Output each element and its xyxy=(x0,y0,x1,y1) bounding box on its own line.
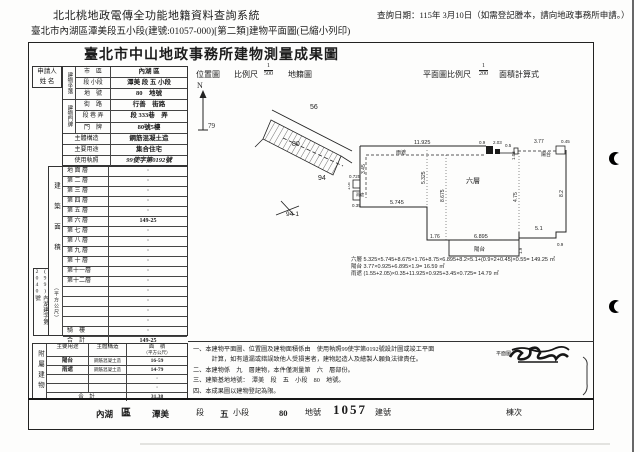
annex-table: 附屬建物 主要用途 主體構造 面 積（平方公尺） 陽台鋼筋混凝土造16-59 雨… xyxy=(32,343,188,399)
footer-building-label: 建號 xyxy=(375,407,391,418)
svg-text:4.75: 4.75 xyxy=(513,192,519,202)
note-line: 一、本建物平面圖、位置圖及建物面積係由 使用執照99使字第0192號設計圖或竣工… xyxy=(193,345,528,355)
svg-text:0.35: 0.35 xyxy=(352,203,361,208)
section-label-address: 建物門牌 xyxy=(62,99,75,133)
map-title: 位置圖 xyxy=(196,69,220,80)
binder-hole-mark xyxy=(609,300,622,313)
svg-text:2.03: 2.03 xyxy=(493,140,502,145)
case-number: (99)內湖建字第2040號 xyxy=(33,269,49,335)
svg-text:0.9: 0.9 xyxy=(557,242,564,247)
annex-row: · xyxy=(47,375,187,384)
floor-row: 第 七 層· xyxy=(63,227,187,237)
document-subtitle: 臺北市內湖區潭美段五小段(建號:01057-000)[第二類]建物平面圖(已縮小… xyxy=(31,23,350,37)
formula-line: 雨遮 (1.55+2.05)×0.35+11.925×0.925+3.45×0.… xyxy=(351,271,581,278)
floor-area-table: 建築面積 （平方公尺） 地 面 層· 第 二 層· 第 三 層· 第 四 層· … xyxy=(48,166,188,336)
floor-row: · xyxy=(63,287,187,297)
annex-side-label: 附屬建物 xyxy=(33,344,47,398)
footer-divider-line xyxy=(28,398,594,400)
footer-subsection-label: 小段 xyxy=(233,407,249,418)
svg-text:5.745: 5.745 xyxy=(390,200,404,206)
note-line: 二、本建物係 九 層建物，本件僅測量第 六 層部份。 xyxy=(193,366,528,376)
table-row: 地 號80 地號 xyxy=(63,89,187,100)
plan-scale-fraction: 1200 xyxy=(479,63,488,77)
plan-calc-label: 面積計算式 xyxy=(499,69,539,80)
svg-text:3.77: 3.77 xyxy=(534,139,544,145)
footer-lot-value: 80 xyxy=(279,408,288,418)
footer-unit-label: 棟次 xyxy=(506,407,522,418)
surveyor-stamp-icon xyxy=(508,343,572,365)
notes-block: 一、本建物平面圖、位置圖及建物面積係由 使用執照99使字第0192號設計圖或竣工… xyxy=(193,345,528,397)
svg-text:陽台: 陽台 xyxy=(474,245,486,253)
bracket-mark-icon xyxy=(582,356,591,396)
parcel-79-label: 79 xyxy=(208,122,215,130)
floor-row: · xyxy=(63,317,187,327)
applicant-box: 申請人 姓 名 xyxy=(32,66,62,88)
svg-text:0.5: 0.5 xyxy=(505,143,512,148)
annex-row: 雨遮鋼筋混凝土造14-79 xyxy=(47,366,187,375)
land-record-page: 北北桃地政電傳全功能地籍資料查詢系統 查詢日期：115年 3月10日（如需登記謄… xyxy=(0,0,640,452)
location-map: 56 80 94 94-1 xyxy=(250,85,355,230)
svg-text:6.895: 6.895 xyxy=(474,234,488,240)
svg-text:5.1: 5.1 xyxy=(535,226,543,232)
svg-text:0.9: 0.9 xyxy=(479,140,486,145)
parcel-56-label: 56 xyxy=(310,104,318,111)
svg-text:8.2: 8.2 xyxy=(559,190,565,197)
query-date: 查詢日期：115年 3月10日（如需登記謄本，請向地政事務所申請。） xyxy=(377,9,630,21)
svg-text:1.9: 1.9 xyxy=(518,247,523,254)
table-row: 段 巷 弄段 333巷 弄 xyxy=(63,111,187,122)
svg-text:陽台: 陽台 xyxy=(541,151,551,158)
floor-row: 第 九 層· xyxy=(63,247,187,257)
footer-section-label: 段 xyxy=(196,407,204,418)
footer-section-value: 潭美 xyxy=(152,408,169,420)
floor-row: 第十一層· xyxy=(63,267,187,277)
floor-row: 第 四 層· xyxy=(63,197,187,207)
svg-text:8.675: 8.675 xyxy=(440,189,446,202)
map-name: 地籍圖 xyxy=(288,69,312,80)
scan-artifact-line xyxy=(140,443,610,445)
section-label-location: 建物坐落 xyxy=(62,66,75,99)
footer-district-value: 內湖 xyxy=(96,408,113,420)
applicant-label-1: 申請人 xyxy=(33,67,61,77)
note-line: 四、本成果圖以建物登記為限。 xyxy=(193,387,528,397)
svg-text:5.325: 5.325 xyxy=(421,171,427,184)
floor-row: 地 面 層· xyxy=(63,167,187,177)
table-row: 主體構造鋼筋混凝土造 xyxy=(63,134,187,145)
annex-grid: 主要用途 主體構造 面 積（平方公尺） 陽台鋼筋混凝土造16-59 雨遮鋼筋混凝… xyxy=(47,344,187,398)
notes-top-line xyxy=(188,341,594,342)
footer-building-number: 1057 xyxy=(333,402,367,418)
footer-district-label: 區 xyxy=(121,404,131,419)
annex-header: 主要用途 主體構造 面 積（平方公尺） xyxy=(47,344,187,357)
svg-text:1.05: 1.05 xyxy=(348,181,351,190)
system-title: 北北桃地政電傳全功能地籍資料查詢系統 xyxy=(53,7,260,23)
svg-text:1.05: 1.05 xyxy=(511,151,516,160)
svg-text:雨遮: 雨遮 xyxy=(396,149,406,156)
footer-subsection-value: 五 xyxy=(220,408,229,420)
area-formulas: 六層 5.325×5.745+8.675×1.76+8.75×6.895+8.2… xyxy=(351,257,581,279)
svg-text:雨遮: 雨遮 xyxy=(356,191,364,197)
table-row: 門 牌80號5樓 xyxy=(63,123,187,134)
footer-lot-label: 地號 xyxy=(305,407,321,418)
note-line: 三、建築基地地號： 潭美 段 五 小段 80 地號。 xyxy=(193,376,528,386)
parcel-80-label: 80 xyxy=(292,141,300,148)
svg-text:11.925: 11.925 xyxy=(414,140,430,146)
parcel-94-1-label: 94-1 xyxy=(286,211,299,218)
floor-row: · xyxy=(63,297,187,307)
note-line: 計算，如有遺漏或錯誤致他人受損害者，建物起造人及繪製人願負法律責任。 xyxy=(193,355,528,365)
svg-text:0.45: 0.45 xyxy=(561,139,570,144)
parcel-94-label: 94 xyxy=(318,175,326,182)
floor-row: 第 六 層149-25 xyxy=(63,217,187,227)
case-number-box: (99)內湖建字第2040號 xyxy=(33,268,49,336)
svg-text:1.76: 1.76 xyxy=(430,234,440,240)
floor-row: 第 三 層· xyxy=(63,187,187,197)
table-row: 主要用途集合住宅 xyxy=(63,145,187,156)
plan-title: 平面圖比例尺 xyxy=(423,69,471,80)
annex-row: 陽台鋼筋混凝土造16-59 xyxy=(47,357,187,366)
floor-row: · xyxy=(63,307,187,317)
floor-row: 第 十 層· xyxy=(63,257,187,267)
map-scale-label: 比例尺 xyxy=(234,69,258,80)
binder-hole-mark xyxy=(609,152,622,165)
building-info-table: 市 區內湖 區 段 小段潭美 段 五 小段 地 號80 地號 街 路行善 街路 … xyxy=(62,66,188,166)
table-row: 市 區內湖 區 xyxy=(63,67,187,78)
svg-text:六層: 六層 xyxy=(466,176,480,185)
north-label: N xyxy=(197,81,203,90)
table-row: 段 小段潭美 段 五 小段 xyxy=(63,78,187,89)
document-title: 臺北市中山地政事務所建物測量成果圖 xyxy=(84,44,339,64)
annex-row: · xyxy=(47,384,187,393)
floor-row: 第 二 層· xyxy=(63,177,187,187)
applicant-label-2: 姓 名 xyxy=(33,77,61,87)
floor-rows: 地 面 層· 第 二 層· 第 三 層· 第 四 層· 第 五 層· 第 六 層… xyxy=(63,167,187,335)
svg-text:0.725: 0.725 xyxy=(349,174,361,179)
map-scale-fraction: 1500 xyxy=(264,63,273,77)
floor-row: 第 八 層· xyxy=(63,237,187,247)
table-row: 街 路行善 街路 xyxy=(63,100,187,111)
floor-row: 第十二層· xyxy=(63,277,187,287)
floor-plan: 11.925 雨遮 0.9 2.03 0.5 1.05 3.77 陽台 0.45… xyxy=(348,134,580,258)
floor-area-side-label: 建築面積 （平方公尺） xyxy=(49,167,63,335)
floor-row: 第 五 層· xyxy=(63,207,187,217)
page-edge-line xyxy=(632,0,634,452)
floor-row: 騎 樓· xyxy=(63,327,187,337)
svg-text:3.45: 3.45 xyxy=(361,164,367,174)
